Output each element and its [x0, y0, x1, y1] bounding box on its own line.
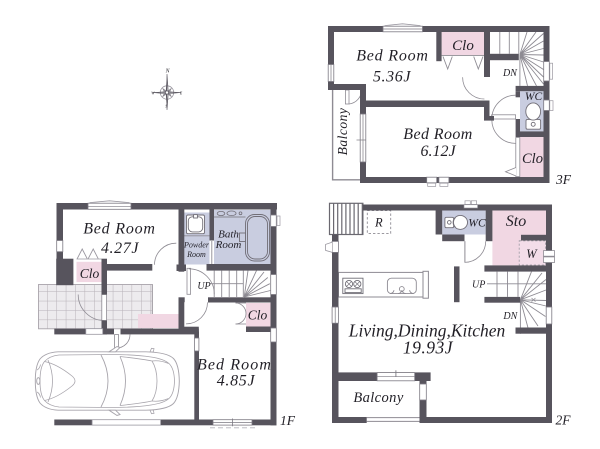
svg-text:Bed Room: Bed Room [403, 126, 472, 143]
svg-text:S: S [165, 105, 167, 109]
svg-text:Balcony: Balcony [353, 390, 403, 406]
svg-text:WC: WC [525, 91, 543, 103]
svg-text:W: W [526, 247, 538, 261]
svg-text:UP: UP [472, 279, 485, 290]
svg-text:Sto: Sto [506, 213, 526, 230]
svg-text:Clo: Clo [522, 151, 543, 167]
svg-text:Bed Room: Bed Room [356, 48, 429, 65]
svg-text:3F: 3F [555, 172, 572, 187]
svg-text:Clo: Clo [452, 38, 474, 54]
svg-text:1F: 1F [280, 413, 296, 428]
svg-text:WC: WC [468, 218, 486, 230]
svg-text:Room: Room [215, 239, 242, 251]
svg-text:2F: 2F [556, 413, 572, 428]
svg-text:6.12J: 6.12J [420, 143, 456, 160]
svg-text:UP: UP [197, 281, 210, 292]
svg-text:Powder: Powder [183, 240, 210, 249]
svg-text:Bed Room: Bed Room [197, 357, 272, 374]
svg-text:Bed Room: Bed Room [83, 221, 156, 238]
svg-text:Room: Room [186, 250, 206, 259]
svg-text:19.93J: 19.93J [403, 338, 454, 358]
svg-text:4.85J: 4.85J [217, 373, 256, 390]
svg-text:5.36J: 5.36J [373, 69, 411, 86]
svg-text:R: R [374, 216, 383, 230]
svg-text:Balcony: Balcony [335, 108, 350, 156]
svg-text:Clo: Clo [248, 308, 268, 323]
svg-text:4.27J: 4.27J [101, 240, 139, 257]
svg-text:Clo: Clo [80, 266, 100, 281]
svg-text:DN: DN [502, 68, 518, 79]
